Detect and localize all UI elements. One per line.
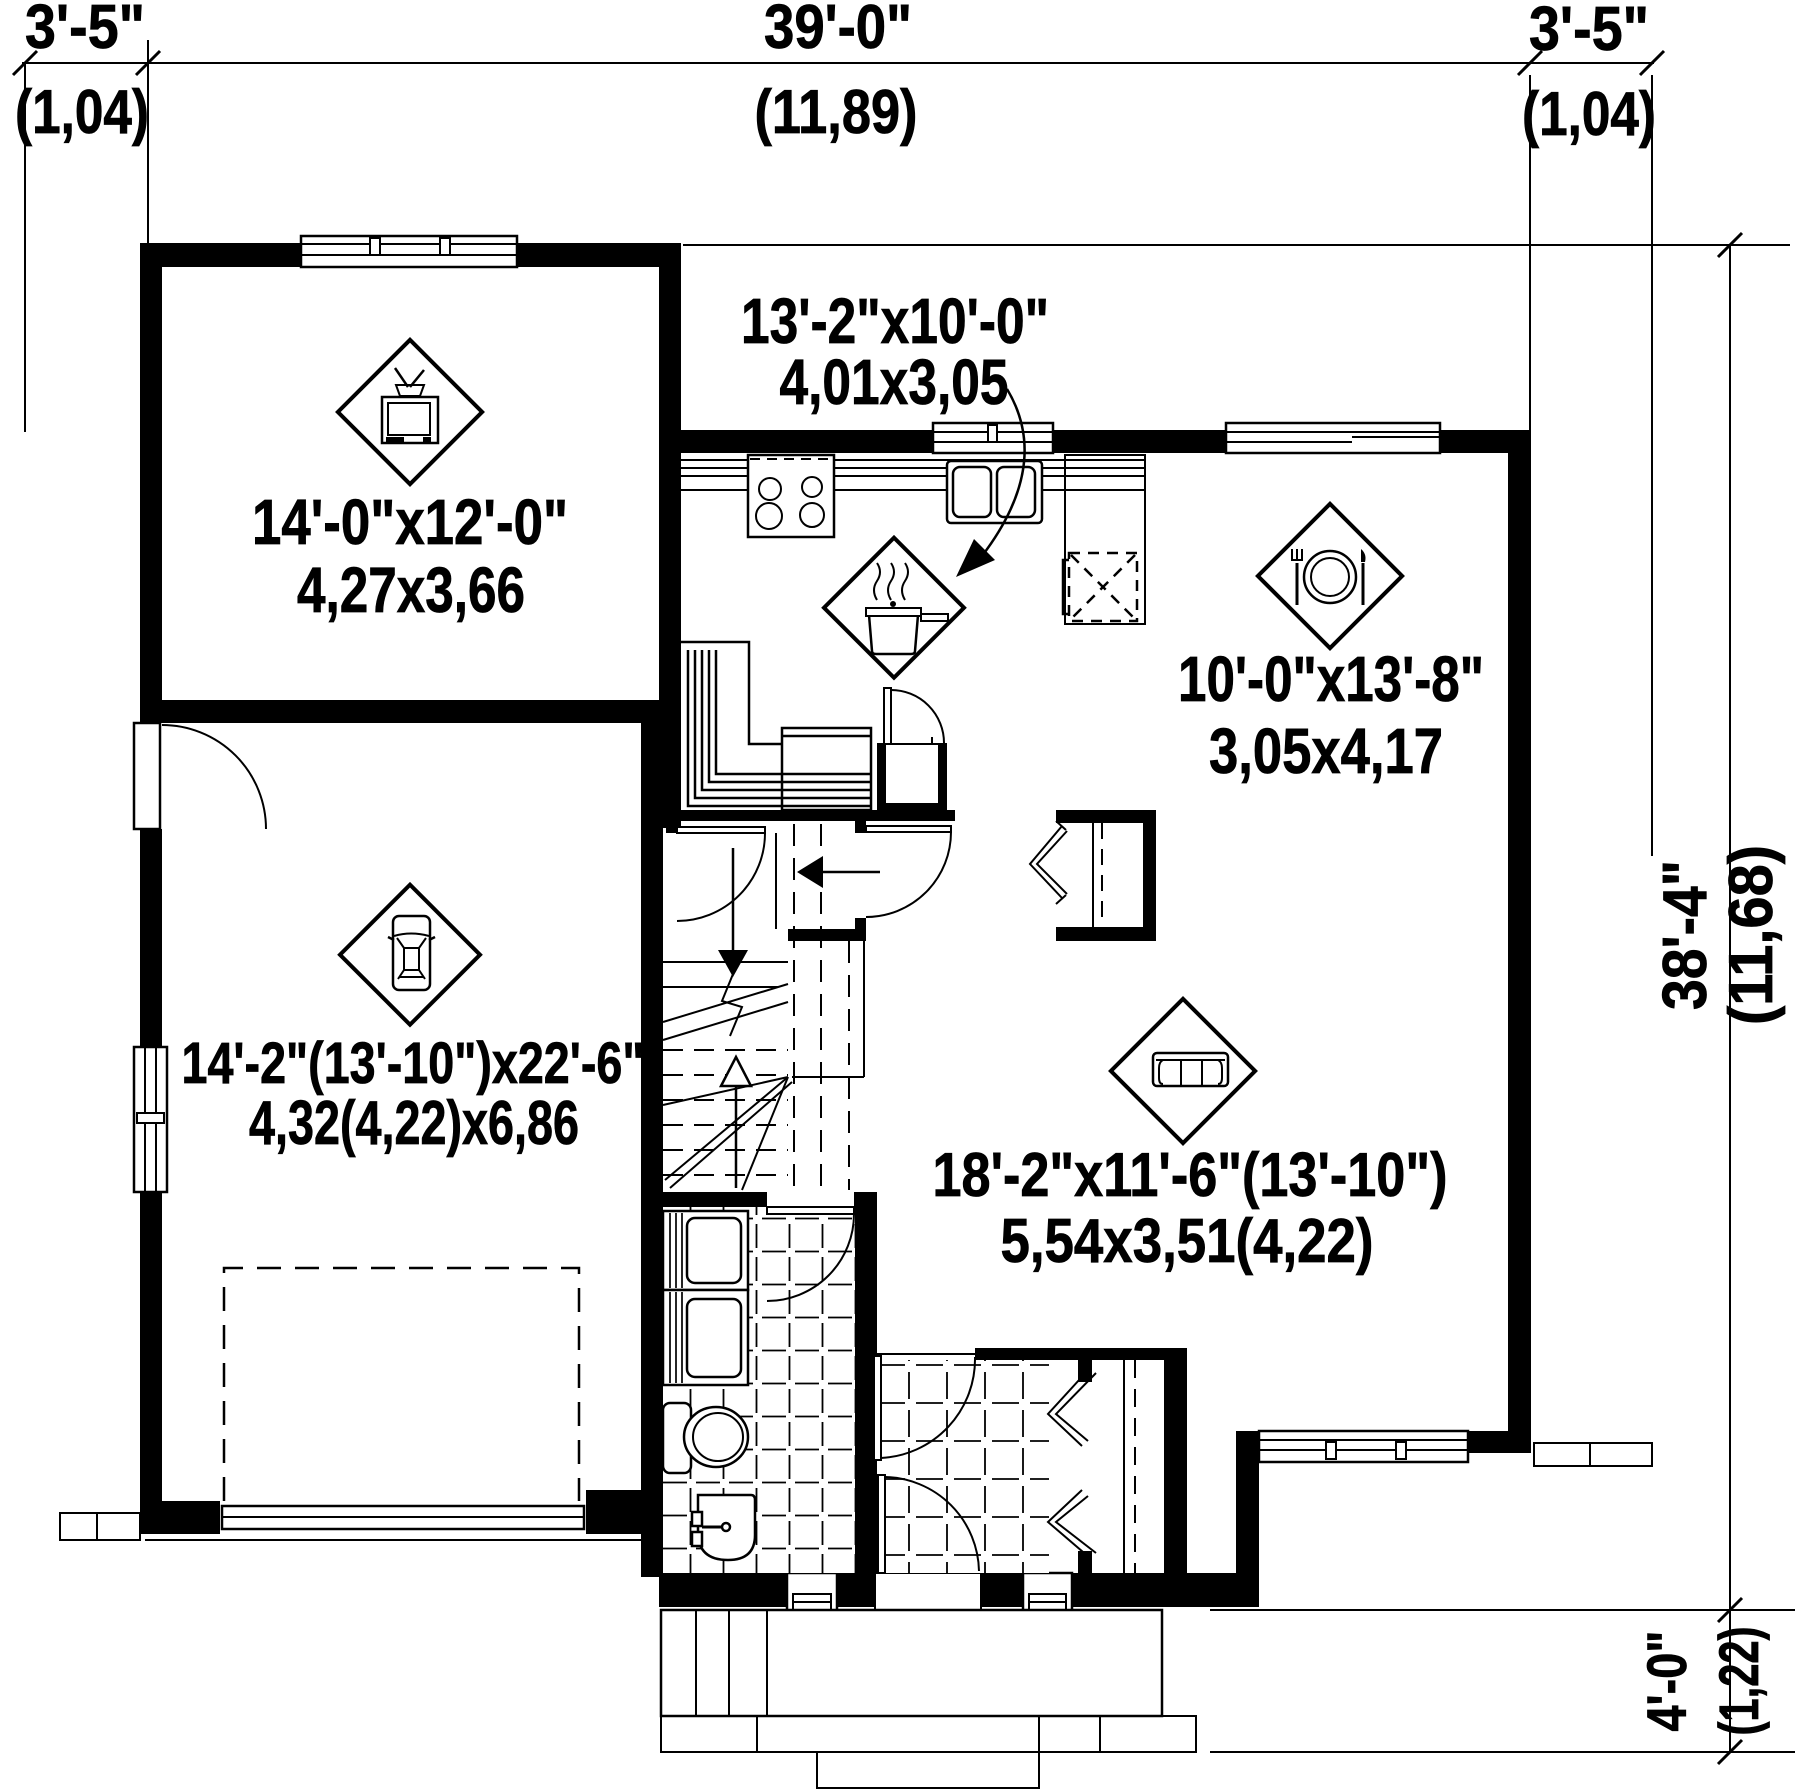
svg-text:(1,04): (1,04) — [1522, 80, 1656, 149]
svg-text:3'-5": 3'-5" — [25, 0, 145, 62]
svg-text:4,32(4,22)x6,86: 4,32(4,22)x6,86 — [249, 1089, 579, 1158]
svg-text:(11,68): (11,68) — [1717, 845, 1786, 1025]
svg-text:3,05x4,17: 3,05x4,17 — [1209, 715, 1443, 787]
svg-text:10'-0"x13'-8": 10'-0"x13'-8" — [1178, 643, 1484, 715]
svg-text:14'-0"x12'-0": 14'-0"x12'-0" — [252, 486, 568, 558]
svg-text:(1,04): (1,04) — [15, 78, 149, 147]
svg-text:4,27x3,66: 4,27x3,66 — [297, 554, 525, 626]
svg-text:(11,89): (11,89) — [755, 78, 918, 147]
svg-text:18'-2"x11'-6"(13'-10"): 18'-2"x11'-6"(13'-10") — [933, 1141, 1448, 1210]
svg-text:(1,22): (1,22) — [1707, 1627, 1770, 1736]
svg-text:3'-5": 3'-5" — [1529, 0, 1649, 64]
svg-text:14'-2"(13'-10")x22'-6": 14'-2"(13'-10")x22'-6" — [182, 1031, 645, 1096]
svg-text:38'-4": 38'-4" — [1651, 860, 1720, 1010]
svg-text:4'-0": 4'-0" — [1635, 1631, 1698, 1732]
svg-text:4,01x3,05: 4,01x3,05 — [780, 346, 1009, 418]
svg-text:39'-0": 39'-0" — [764, 0, 912, 62]
svg-text:5,54x3,51(4,22): 5,54x3,51(4,22) — [1001, 1207, 1374, 1276]
